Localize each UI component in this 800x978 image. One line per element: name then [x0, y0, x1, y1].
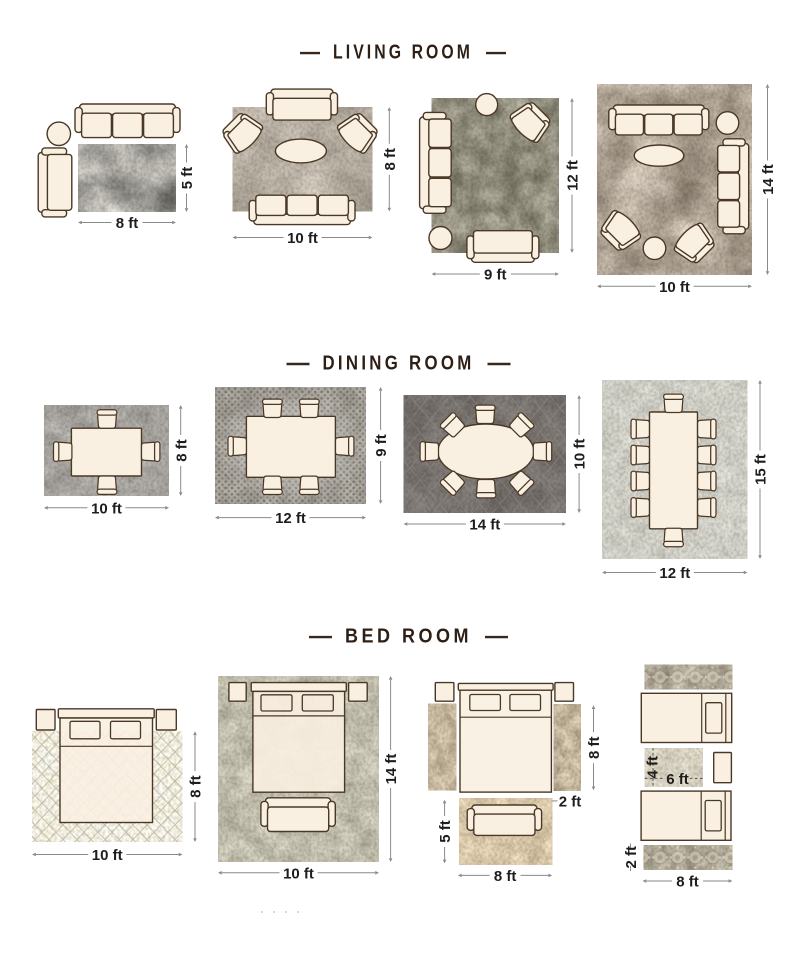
svg-text:10 ft: 10 ft [92, 847, 123, 864]
svg-text:14 ft: 14 ft [383, 754, 400, 785]
svg-text:14 ft: 14 ft [760, 164, 777, 195]
svg-text:12 ft: 12 ft [659, 565, 690, 582]
svg-text:LIVING ROOM: LIVING ROOM [333, 41, 473, 64]
svg-text:10 ft: 10 ft [287, 230, 318, 247]
svg-text:14 ft: 14 ft [469, 517, 500, 534]
svg-text:DINING ROOM: DINING ROOM [323, 351, 475, 374]
svg-text:8 ft: 8 ft [173, 439, 190, 462]
svg-text:BED ROOM: BED ROOM [345, 625, 472, 648]
svg-text:6 ft: 6 ft [666, 771, 689, 788]
svg-text:8 ft: 8 ft [494, 868, 517, 885]
svg-text:10 ft: 10 ft [91, 500, 122, 517]
svg-text:9 ft: 9 ft [373, 434, 390, 457]
svg-text:10 ft: 10 ft [283, 865, 314, 882]
svg-text:5 ft: 5 ft [179, 167, 196, 190]
svg-text:12 ft: 12 ft [275, 510, 306, 527]
svg-text:10 ft: 10 ft [572, 439, 589, 470]
svg-text:9 ft: 9 ft [484, 267, 507, 284]
svg-text:8 ft: 8 ft [676, 874, 699, 891]
svg-text:8 ft: 8 ft [116, 215, 139, 232]
svg-text:8 ft: 8 ft [382, 148, 399, 171]
svg-text:8 ft: 8 ft [586, 737, 603, 760]
svg-text:8 ft: 8 ft [188, 775, 205, 798]
svg-text:2 ft: 2 ft [559, 793, 582, 810]
svg-text:5 ft: 5 ft [437, 820, 454, 843]
svg-text:2 ft: 2 ft [623, 846, 640, 869]
svg-text:12 ft: 12 ft [565, 160, 582, 191]
svg-text:15 ft: 15 ft [753, 454, 770, 485]
svg-text:10 ft: 10 ft [659, 279, 690, 296]
svg-text:4 ft: 4 ft [645, 756, 662, 779]
